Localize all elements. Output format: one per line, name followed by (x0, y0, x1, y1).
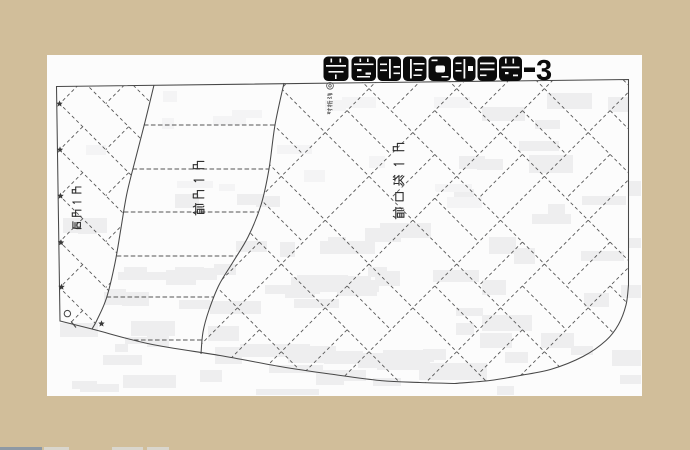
svg-text:3: 3 (536, 55, 552, 87)
